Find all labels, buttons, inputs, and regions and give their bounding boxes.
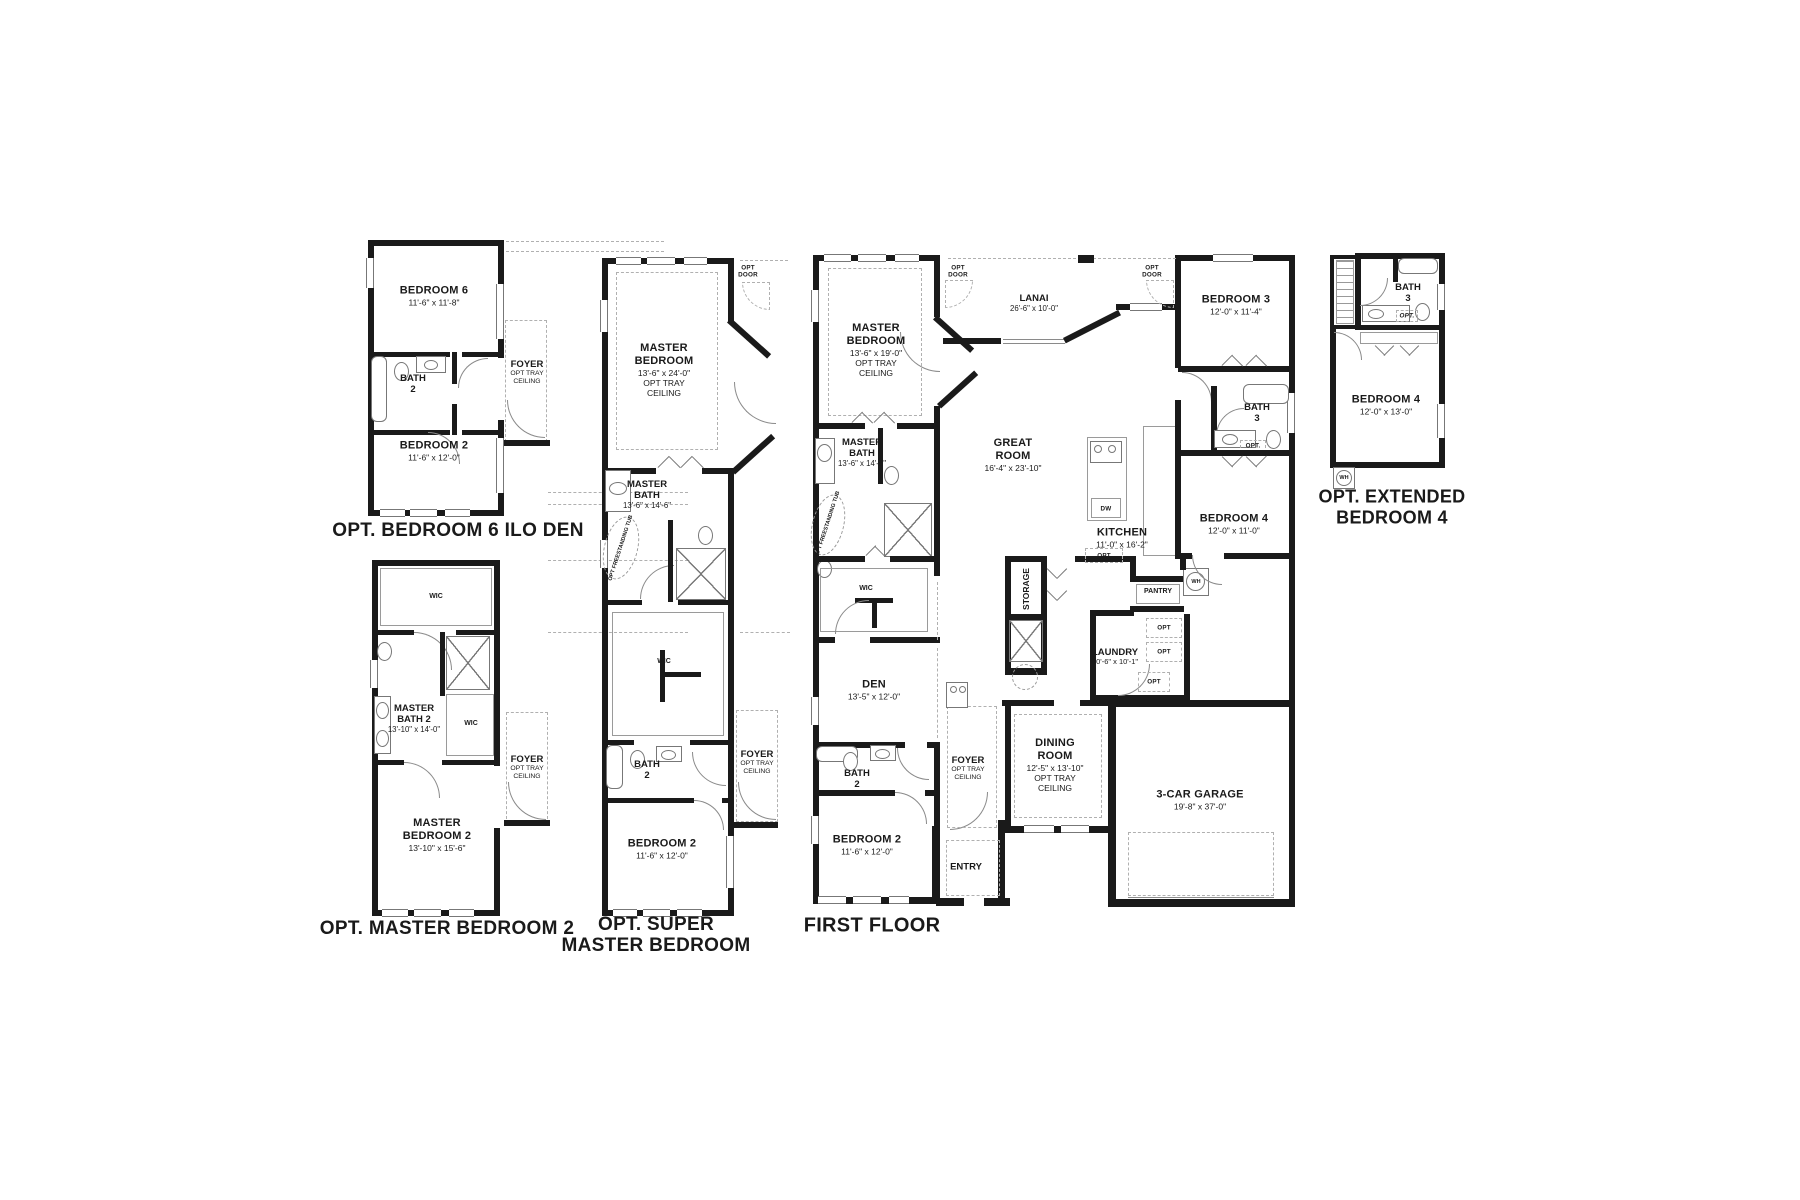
wall	[1393, 257, 1398, 282]
door-arc-icon	[1360, 278, 1388, 306]
opt-label: OPT.	[1399, 312, 1414, 319]
water-heater-label: WH	[1339, 475, 1348, 481]
tub-icon	[1398, 258, 1438, 274]
closet-outline	[1360, 332, 1438, 344]
sink-icon	[1368, 309, 1384, 319]
closet-door-line	[1409, 345, 1420, 356]
plan-opt-extended-bedroom4: BATH 3 OPT. BEDROOM 4 12'-0" x 13'-0" WH…	[0, 0, 1800, 1200]
room-dims: 12'-0" x 13'-0"	[1360, 406, 1412, 416]
wall	[1330, 255, 1334, 329]
door-arc-icon	[1334, 332, 1362, 360]
room-label-bath3: BATH 3	[1394, 282, 1422, 304]
wall	[1330, 255, 1358, 259]
room-name: BEDROOM 4	[1352, 394, 1420, 407]
opt-text: OPT.	[1399, 312, 1414, 319]
wall	[1355, 325, 1445, 330]
window	[1437, 404, 1445, 438]
linen-shelves	[1336, 260, 1354, 324]
plan-title-line1: OPT. EXTENDED	[1319, 487, 1466, 508]
room-name: BATH 3	[1394, 282, 1422, 304]
plan-title-line2: BEDROOM 4	[1336, 508, 1448, 529]
room-label-bedroom4: BEDROOM 4 12'-0" x 13'-0"	[1352, 394, 1420, 417]
window	[1437, 284, 1445, 310]
closet-door-line	[1384, 345, 1395, 356]
floorplan-canvas: BEDROOM 6 11'-6" x 11'-8" BATH 2 FOYER O…	[0, 0, 1800, 1200]
wh-text: WH	[1339, 475, 1348, 481]
